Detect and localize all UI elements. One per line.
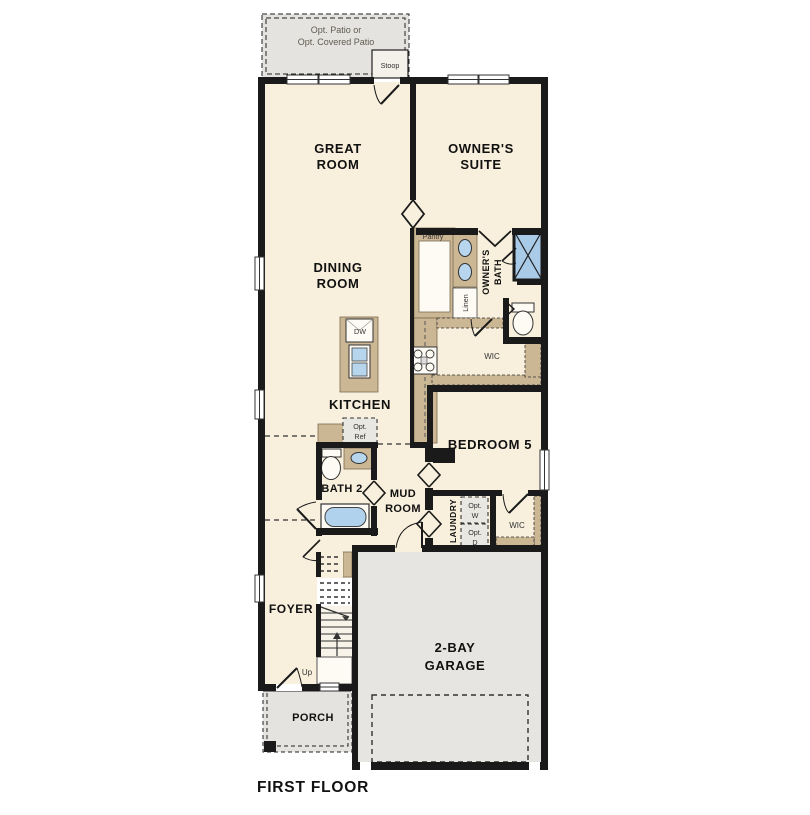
garage-label-2: GARAGE [425, 658, 486, 673]
floorplan-page: Opt. Patio or Opt. Covered Patio Stoop G… [0, 0, 810, 810]
bath2-label: BATH 2 [321, 483, 362, 495]
vanity-sink-2 [459, 264, 472, 281]
laundry-label: LAUNDRY [448, 499, 458, 543]
vanity-sink-1 [459, 240, 472, 257]
kitchen-label: KITCHEN [329, 397, 391, 412]
opt-ref-label-1: Opt. [353, 422, 367, 431]
dining-room-label-1: DINING [313, 260, 362, 275]
dining-room-label-2: ROOM [317, 276, 360, 291]
opt-w-label-1: Opt. [468, 501, 482, 510]
mud-room-label-2: ROOM [385, 503, 421, 515]
shower [514, 231, 542, 280]
bathtub [321, 504, 369, 530]
owners-bath-label-1: OWNER'S [481, 249, 491, 294]
owners-suite-label-1: OWNER'S [448, 141, 514, 156]
patio-label-1: Opt. Patio or [311, 25, 362, 35]
floorplan-svg: Opt. Patio or Opt. Covered Patio Stoop G… [0, 0, 810, 810]
owners-toilet [512, 303, 534, 335]
bath2-sink [351, 453, 367, 464]
opt-ref-label-2: Ref [354, 432, 365, 441]
mud-room-label-1: MUD [390, 488, 416, 500]
linen-label: Linen [461, 294, 470, 312]
up-label: Up [302, 668, 313, 677]
great-room-label-2: ROOM [317, 157, 360, 172]
opt-d-label-2: D [472, 538, 477, 547]
wic-lower-label: WIC [509, 521, 525, 530]
dw-label: DW [354, 327, 366, 336]
porch-label: PORCH [292, 712, 334, 724]
foyer-label: FOYER [269, 602, 313, 616]
wic-upper-label: WIC [484, 352, 500, 361]
bedroom5-label: BEDROOM 5 [448, 437, 532, 452]
opt-w-label-2: W [472, 511, 479, 520]
garage-label-1: 2-BAY [435, 640, 476, 655]
bath2-toilet [322, 449, 342, 480]
opt-d-label-1: Opt. [468, 528, 482, 537]
stove [411, 347, 437, 374]
owners-suite-label-2: SUITE [460, 157, 501, 172]
stoop-label: Stoop [381, 61, 400, 70]
owners-bath-label-2: BATH [493, 259, 503, 285]
patio-label-2: Opt. Covered Patio [298, 37, 375, 47]
pantry-label: Pantry [423, 232, 444, 241]
great-room-label-1: GREAT [314, 141, 362, 156]
plan-title: FIRST FLOOR [257, 779, 369, 796]
porch-post [264, 741, 276, 752]
